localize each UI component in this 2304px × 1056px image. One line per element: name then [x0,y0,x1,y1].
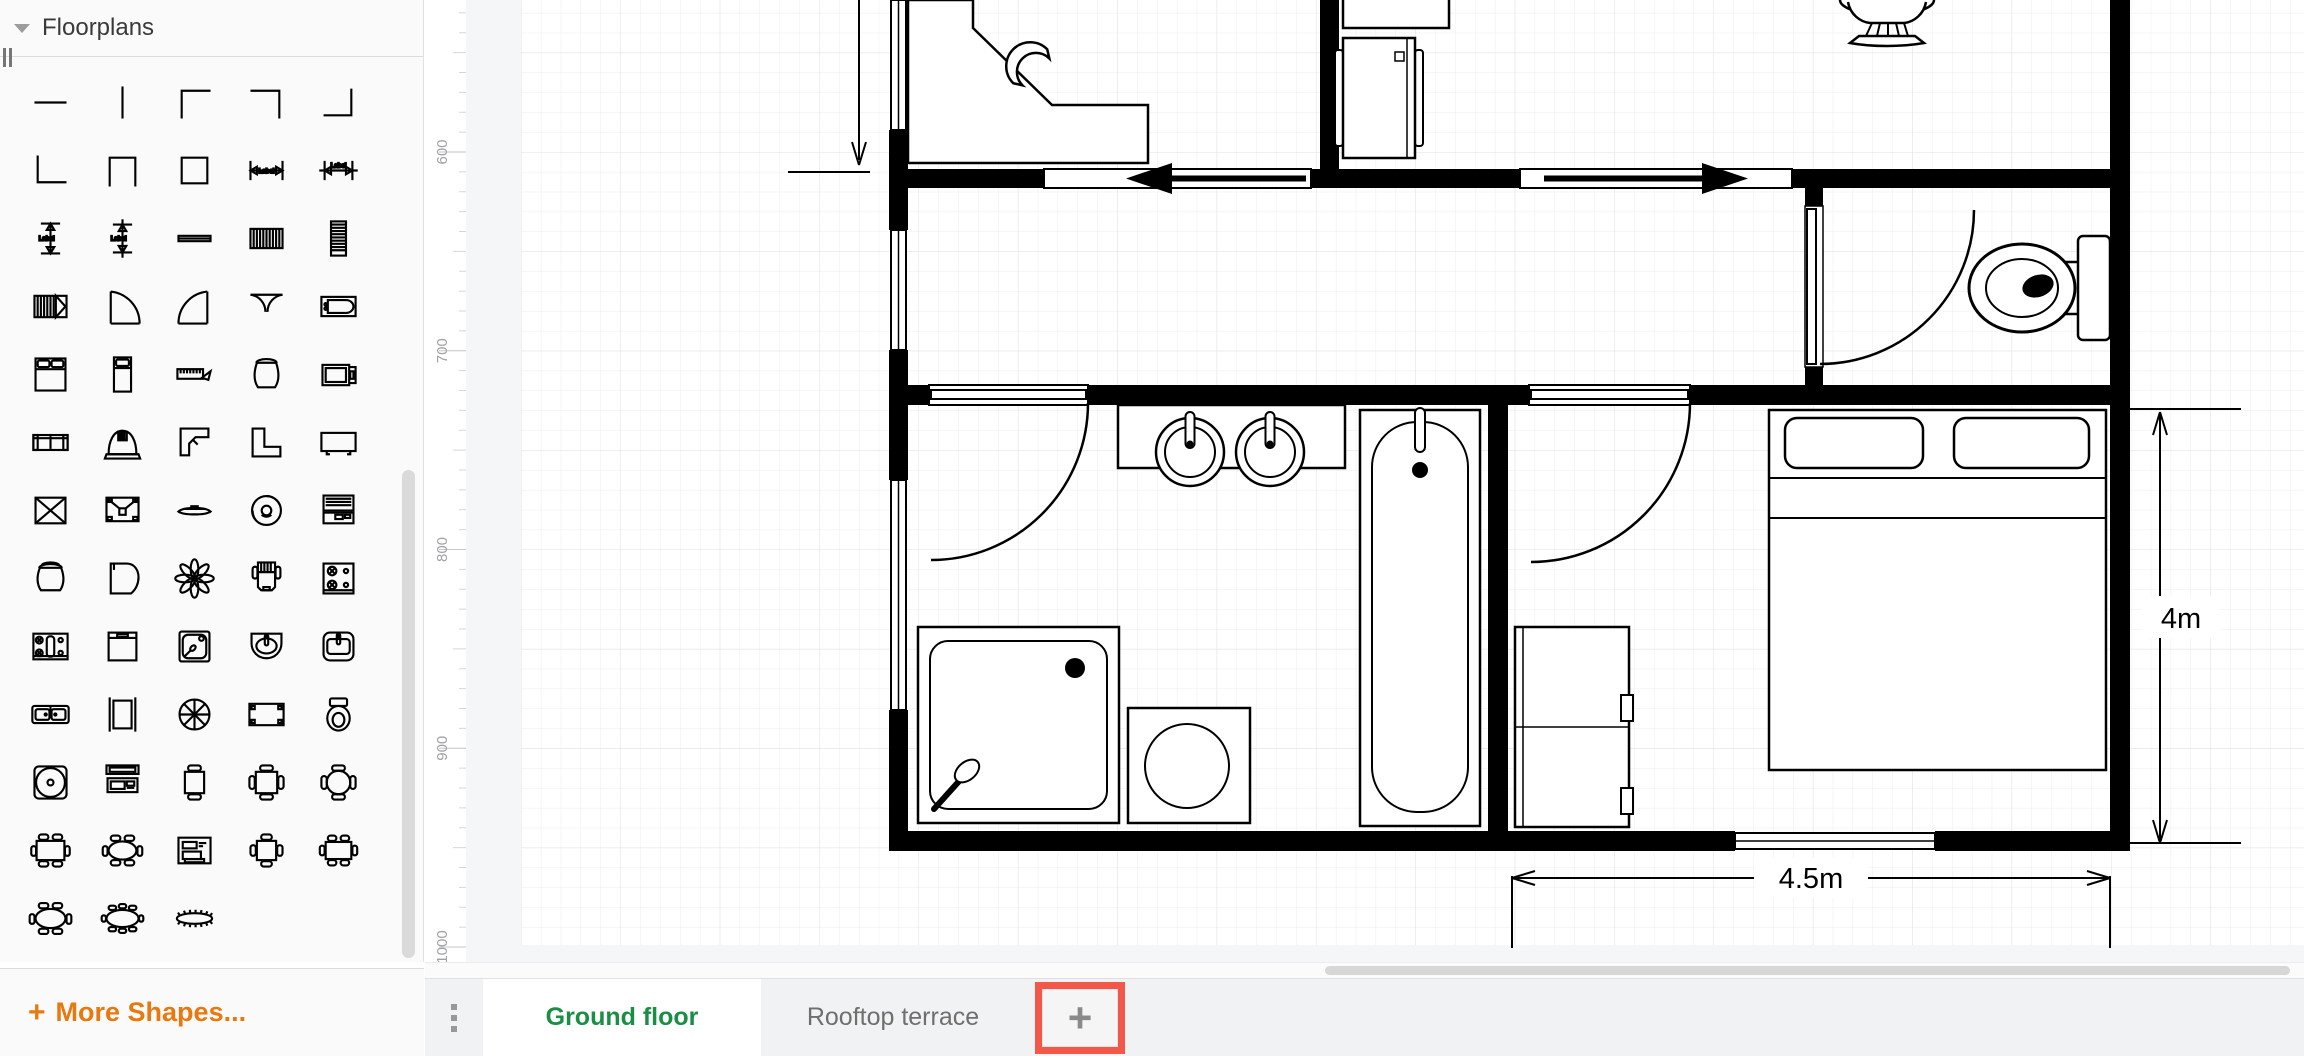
shape-stove[interactable] [302,544,374,612]
tab-ground-floor-label: Ground floor [546,1003,699,1032]
double-bed[interactable] [1769,410,2106,770]
tab-rooftop-terrace-label: Rooftop terrace [807,1003,979,1032]
shape-ceiling-fan[interactable] [230,476,302,544]
shape-wall-u[interactable] [86,136,158,204]
shape-table-low[interactable] [158,476,230,544]
shape-plant-flower[interactable] [158,544,230,612]
shape-spiral-stairs[interactable] [158,680,230,748]
shape-bed-double[interactable] [14,340,86,408]
horizontal-scrollbar-thumb[interactable] [1325,966,2290,975]
add-page-button[interactable]: + [1042,989,1118,1047]
shape-desk-corner[interactable] [158,408,230,476]
shape-speaker[interactable] [86,476,158,544]
shape-workstation[interactable] [86,748,158,816]
shape-sink-square[interactable] [302,612,374,680]
shape-elevator[interactable] [86,680,158,748]
more-shapes-button[interactable]: + More Shapes... [0,968,424,1056]
dimension-4-5m-label: 4.5m [1779,863,1843,895]
shape-dimension-vertical-alt[interactable]: Label [86,204,158,272]
shape-armchair[interactable] [230,340,302,408]
shape-shower[interactable] [158,612,230,680]
sidebar-scrollbar[interactable] [402,470,415,958]
shapes-sidebar: Floorplans LabelLabelLabelLabel [0,0,424,962]
shape-wall-corner-nw[interactable] [158,68,230,136]
shape-couch[interactable] [14,408,86,476]
shape-tv-cabinet[interactable] [302,340,374,408]
shape-conference-table[interactable] [86,884,158,952]
ruler-label: 600 [434,139,451,164]
shape-wall-vertical[interactable] [86,68,158,136]
shape-toilet[interactable] [302,680,374,748]
shape-piano[interactable] [86,544,158,612]
svg-text:Label: Label [38,235,54,242]
shape-table[interactable] [230,680,302,748]
shape-sink-double[interactable] [14,680,86,748]
click-highlight: + [1035,982,1125,1054]
shape-table-2-chairs[interactable] [158,748,230,816]
shapes-section-header[interactable]: Floorplans [0,0,423,57]
shape-stairs-directional[interactable] [14,272,86,340]
vertical-ruler: 6007008009001000 [425,0,466,962]
shape-room[interactable] [158,136,230,204]
washing-machine[interactable] [1128,708,1250,823]
drawio-floorplan-editor: Floorplans LabelLabelLabelLabel + More S… [0,0,2304,1056]
shape-flat-tv[interactable] [302,408,374,476]
ruler-label: 700 [434,338,451,363]
shape-sink-round[interactable] [230,612,302,680]
shape-door[interactable] [86,272,158,340]
shape-double-door[interactable] [230,272,302,340]
shape-fireplace[interactable] [86,408,158,476]
shape-table-6-chairs[interactable] [14,816,86,884]
shape-long-conference-table[interactable] [158,884,230,952]
shower-shape[interactable] [918,627,1119,823]
dresser[interactable] [1515,627,1633,827]
plus-icon: + [28,996,46,1030]
tab-rooftop-terrace[interactable]: Rooftop terrace [761,979,1025,1056]
shape-copier[interactable] [158,816,230,884]
shape-palette: LabelLabelLabelLabel [0,58,410,958]
shape-bed-single[interactable] [86,340,158,408]
shape-wall-corner-se[interactable] [302,68,374,136]
tab-ground-floor[interactable]: Ground floor [483,979,761,1056]
svg-text:Label: Label [110,235,126,242]
toilet-shape[interactable] [1969,236,2110,340]
shape-round-table-4-chairs[interactable] [302,748,374,816]
plus-icon: + [1068,997,1093,1039]
shape-dimension-horizontal-alt[interactable]: Label [302,136,374,204]
shape-square-table-4-chairs[interactable] [230,816,302,884]
shape-dimension-horizontal[interactable]: Label [230,136,302,204]
more-shapes-label: More Shapes... [56,997,247,1028]
ruler-label: 1000 [434,930,451,962]
collapse-triangle-icon [14,24,30,33]
shape-laptop[interactable] [302,476,374,544]
shape-wall-corner-sw[interactable] [14,136,86,204]
shape-scale-ruler[interactable] [158,340,230,408]
dimension-4m-label: 4m [2161,603,2201,635]
canvas-horizontal-scrollbar [425,962,2304,978]
shape-round-rug[interactable] [14,748,86,816]
shapes-section-title: Floorplans [42,14,154,42]
ruler-label: 800 [434,537,451,562]
shape-table-6-chairs-alt[interactable] [302,816,374,884]
shape-door-wide[interactable] [158,272,230,340]
diagram-canvas[interactable]: 4m 4.5m [466,0,2304,962]
svg-text:Label: Label [258,168,274,175]
shape-bathtub[interactable] [302,272,374,340]
shape-cabinet[interactable] [86,612,158,680]
shape-wall-corner-ne[interactable] [230,68,302,136]
page-tab-bar: Ground floor Rooftop terrace + [425,978,2304,1056]
shape-counter-corner[interactable] [230,408,302,476]
shape-dimension-vertical[interactable]: Label [14,204,86,272]
shape-oval-table-4-chairs[interactable] [86,816,158,884]
svg-text:Label: Label [330,162,346,169]
bathtub-shape[interactable] [1360,408,1480,826]
cabinet-top[interactable] [1343,0,1449,28]
shape-laundry-basket[interactable] [14,544,86,612]
splitter-grip-icon[interactable] [3,48,12,67]
shape-wall-horizontal[interactable] [14,68,86,136]
shape-stairs-vertical[interactable] [302,204,374,272]
shape-oval-table-6-chairs[interactable] [14,884,86,952]
ruler-label: 900 [434,736,451,761]
shape-stairs-horizontal[interactable] [230,204,302,272]
shape-kitchen-unit[interactable] [14,612,86,680]
shape-window-crossed[interactable] [14,476,86,544]
pages-menu-button[interactable] [425,979,483,1056]
shape-wall-thin[interactable] [158,204,230,272]
shape-office-chair[interactable] [230,544,302,612]
wardrobe[interactable] [1335,38,1423,158]
shape-table-4-chairs[interactable] [230,748,302,816]
